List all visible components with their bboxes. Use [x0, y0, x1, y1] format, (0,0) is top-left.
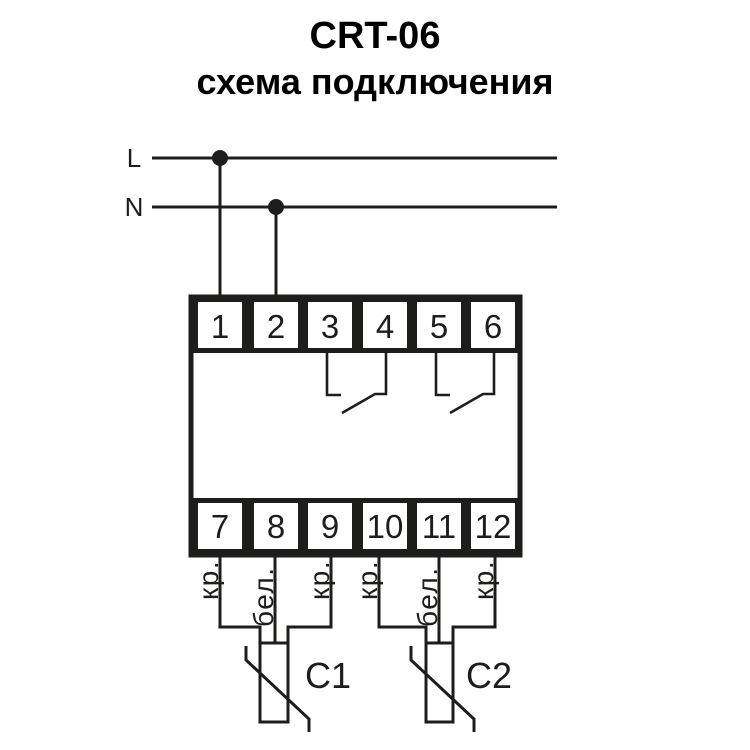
sensor-c1-symbol — [246, 643, 309, 732]
wire-color-label-8: бел. — [248, 567, 279, 627]
wire-color-label-12: кр. — [468, 560, 499, 600]
terminal-label-5: 5 — [430, 308, 448, 345]
terminal-label-9: 9 — [321, 508, 339, 545]
junction-dot-neutral — [268, 199, 284, 215]
terminal-label-12: 12 — [475, 508, 512, 545]
terminal-label-2: 2 — [267, 308, 285, 345]
wire-color-label-10: кр. — [352, 560, 383, 600]
wire-color-label-11: бел. — [412, 567, 443, 627]
sensor-c2-body — [426, 643, 453, 722]
sensor-c1-body — [260, 643, 288, 722]
wire-color-label-9: кр. — [304, 560, 335, 600]
terminal-label-4: 4 — [376, 308, 394, 345]
junction-dot-phase — [212, 150, 228, 166]
wiring-diagram: CRT-06 схема подключения L N 1 2 3 4 5 6 — [0, 0, 750, 750]
terminal-label-10: 10 — [367, 508, 404, 545]
terminal-label-3: 3 — [321, 308, 339, 345]
sensor-c2-symbol — [411, 643, 474, 732]
wire-color-labels: кр. бел. кр. кр. бел. кр. — [193, 560, 499, 627]
sensor-c2-label: C2 — [466, 655, 512, 696]
sensor-c1-label: C1 — [305, 655, 351, 696]
phase-label: L — [127, 143, 141, 173]
terminal-label-11: 11 — [422, 508, 456, 545]
page-title: CRT-06 — [310, 15, 441, 57]
terminal-label-6: 6 — [484, 308, 502, 345]
wire-color-label-7: кр. — [193, 560, 224, 600]
neutral-label: N — [125, 192, 144, 222]
terminal-label-7: 7 — [211, 508, 229, 545]
terminal-label-8: 8 — [267, 508, 285, 545]
terminal-label-1: 1 — [211, 308, 229, 345]
page-subtitle: схема подключения — [196, 61, 553, 102]
